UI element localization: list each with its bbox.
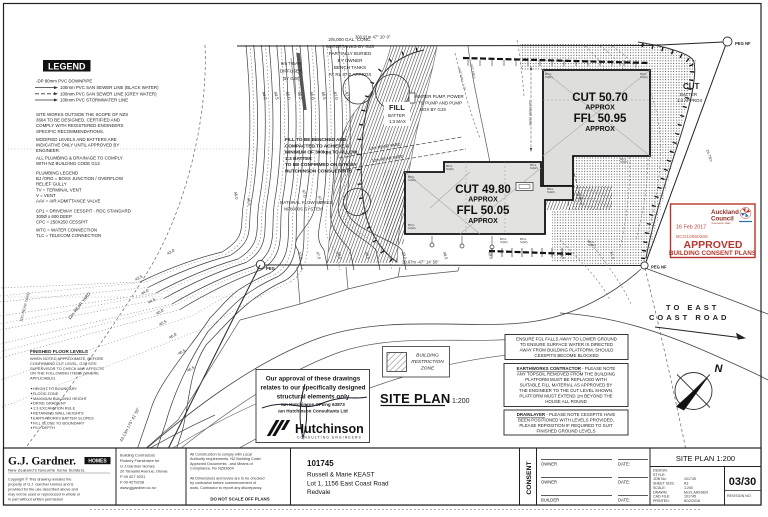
svg-text:DO NOT SCALE OFF PLANS: DO NOT SCALE OFF PLANS — [210, 497, 269, 502]
svg-text:SqWy: SqWy — [446, 167, 454, 171]
svg-text:SqWy: SqWy — [408, 178, 416, 182]
svg-text:OWNER: OWNER — [541, 480, 557, 485]
svg-text:AWAY FROM BUILDING PLATFORM, S: AWAY FROM BUILDING PLATFORM, SHOULD — [520, 348, 614, 353]
svg-text:WATER PUMP, POWER: WATER PUMP, POWER — [416, 94, 464, 99]
svg-text:3604 TO BE DESIGNED, CERTIFIED: 3604 TO BE DESIGNED, CERTIFIED AND — [36, 118, 120, 123]
svg-text:PEG NF: PEG NF — [651, 265, 667, 270]
svg-text:FILL DEPTH: FILL DEPTH — [33, 425, 55, 430]
svg-text:CUT: CUT — [683, 82, 700, 91]
svg-text:1:3 MAX: 1:3 MAX — [389, 119, 406, 124]
svg-text:CONSULTING ENGINEERS: CONSULTING ENGINEERS — [297, 436, 362, 440]
svg-text:TO PUMP AND PUMP: TO PUMP AND PUMP — [418, 101, 462, 106]
svg-text:HUTCHINSON CONSULTANTS: HUTCHINSON CONSULTANTS — [285, 169, 352, 174]
svg-text:1:3 BATTER: 1:3 BATTER — [285, 156, 312, 161]
svg-text:1:4 APPROX: 1:4 APPROX — [677, 98, 702, 103]
svg-text:AT RL 47.2 APPROX: AT RL 47.2 APPROX — [329, 72, 372, 77]
svg-text:Redvale: Redvale — [307, 489, 331, 496]
svg-text:RELIEF GULLY: RELIEF GULLY — [36, 182, 67, 187]
svg-text:COMPACTED TO ACHIEVE A: COMPACTED TO ACHIEVE A — [285, 143, 350, 148]
svg-text:Rodney Franchisee for: Rodney Franchisee for — [120, 458, 160, 463]
svg-text:APPLICABLE): APPLICABLE) — [30, 376, 56, 381]
svg-text:All Dimensions and levels are: All Dimensions and levels are to be chec… — [190, 477, 265, 481]
svg-text:2/5,000 GAL. CONC.: 2/5,000 GAL. CONC. — [328, 37, 371, 42]
svg-text:BEEN POSITIONED WITH LEVELS PR: BEEN POSITIONED WITH LEVELS PROVIDED, — [518, 418, 614, 423]
svg-text:All Construction to comply wit: All Construction to comply with Local — [190, 453, 252, 457]
svg-text:ANY TOPSOIL REMOVED FROM THE B: ANY TOPSOIL REMOVED FROM THE BUILDING — [517, 372, 616, 377]
svg-text:G.J. Gardner.: G.J. Gardner. — [8, 456, 76, 468]
svg-text:FFL 50.05: FFL 50.05 — [457, 205, 510, 217]
svg-text:8/12/2016: 8/12/2016 — [684, 499, 700, 503]
svg-text:CESSPITS BECOME BLOCKED: CESSPITS BECOME BLOCKED — [534, 353, 598, 358]
svg-text:THE ENGINEER TO THE CUT LEVEL: THE ENGINEER TO THE CUT LEVEL SHOWN, — [519, 388, 613, 393]
svg-text:PLUMBING LEGEND: PLUMBING LEGEND — [36, 171, 78, 176]
svg-text:SqWy: SqWy — [408, 226, 416, 230]
svg-text:BATTER: BATTER — [680, 92, 697, 97]
svg-text:MODIFIED LEVELS AND BATTERS AR: MODIFIED LEVELS AND BATTERS ARE — [36, 137, 117, 142]
svg-text:work, Contractor to report any: work, Contractor to report any discrepan… — [190, 486, 262, 490]
svg-text:DATE:: DATE: — [618, 498, 630, 503]
svg-text:CPC = 250X250 CESSPIT: CPC = 250X250 CESSPIT — [36, 220, 88, 225]
svg-text:Compliance, No NZ83604: Compliance, No NZ83604 — [190, 467, 234, 471]
svg-text:101745: 101745 — [307, 459, 334, 468]
svg-text:Lot 1, 1156 East Coast Road: Lot 1, 1156 East Coast Road — [307, 481, 389, 488]
svg-text:APPROX: APPROX — [585, 105, 615, 112]
svg-text:DATE:: DATE: — [618, 462, 630, 467]
svg-text:FINISHED FLOOR LEVELS: FINISHED FLOOR LEVELS — [30, 349, 88, 354]
svg-text:Our approval of these drawings: Our approval of these drawings — [266, 376, 361, 383]
svg-text:NATURAL FLOW SERIES: NATURAL FLOW SERIES — [280, 200, 333, 205]
svg-text:Council: Council — [711, 216, 734, 223]
svg-text:ZONE: ZONE — [420, 366, 435, 372]
svg-text:PLATFORM MUST BE REPLACED WITH: PLATFORM MUST BE REPLACED WITH — [525, 377, 607, 382]
svg-text:Ian Hutchinson Consultants Ltd: Ian Hutchinson Consultants Ltd — [278, 409, 348, 414]
svg-text:100mm PVC STORMWATER LINE: 100mm PVC STORMWATER LINE — [60, 98, 128, 103]
svg-text:CUT 49.80: CUT 49.80 — [455, 184, 511, 196]
svg-text:G.J.Gardner Homes: G.J.Gardner Homes — [120, 463, 155, 468]
svg-text:V = VENT: V = VENT — [36, 193, 56, 198]
svg-text:BENCH TANKS: BENCH TANKS — [334, 65, 366, 70]
svg-text:may not be used or reproduced: may not be used or reproduced in whole o… — [8, 493, 81, 497]
svg-text:P 09 427 9231: P 09 427 9231 — [120, 474, 145, 479]
svg-text:TO EAST: TO EAST — [666, 303, 719, 312]
svg-text:PRINTED:: PRINTED: — [653, 499, 670, 503]
svg-text:ENGINEER.: ENGINEER. — [36, 148, 60, 153]
svg-text:Building Contractors: Building Contractors — [120, 453, 155, 458]
svg-text:SqWy: SqWy — [620, 160, 628, 164]
svg-text:FFL 50.95: FFL 50.95 — [574, 113, 627, 125]
svg-text:FILL TO BE BENCHED AND: FILL TO BE BENCHED AND — [285, 137, 347, 142]
svg-text:relates to our specifically de: relates to our specifically designed — [261, 385, 366, 392]
svg-text:SqWy: SqWy — [545, 75, 553, 79]
svg-text:16 Feb 2017: 16 Feb 2017 — [676, 225, 706, 231]
svg-text:PLATFORM MUST EXTEND 1m BEYOND: PLATFORM MUST EXTEND 1m BEYOND THE — [519, 394, 612, 399]
svg-text:DRAINLAYER - PLEASE NOTE CESSP: DRAINLAYER - PLEASE NOTE CESSPITS HAVE — [517, 412, 616, 417]
svg-text:HOUSE ALL ROUND: HOUSE ALL ROUND — [545, 399, 587, 404]
svg-text:Copyright © This drawing remai: Copyright © This drawing remains the — [8, 478, 72, 482]
svg-text:BY OWNER: BY OWNER — [338, 58, 364, 63]
svg-text:03/30: 03/30 — [729, 476, 757, 488]
svg-text:LEGEND: LEGEND — [48, 62, 86, 72]
svg-text:by contractor before commencem: by contractor before commencement of — [190, 481, 257, 485]
svg-text:PEG NF: PEG NF — [735, 41, 751, 46]
svg-text:BOX BY GJS: BOX BY GJS — [420, 107, 446, 112]
svg-text:RESTRICTION: RESTRICTION — [411, 359, 444, 365]
svg-text:COAST ROAD: COAST ROAD — [649, 313, 729, 322]
svg-text:ENSURE FGL FALLS AWAY TO LOWER: ENSURE FGL FALLS AWAY TO LOWER GROUND — [516, 337, 617, 342]
svg-text:SUITABLE FILL MATERIAL AS APPR: SUITABLE FILL MATERIAL AS APPROVED BY — [520, 383, 613, 388]
svg-text:39.67m -47° 14' 50": 39.67m -47° 14' 50" — [402, 260, 439, 265]
svg-text:SqWy: SqWy — [547, 190, 555, 194]
svg-text:Hutchinson: Hutchinson — [295, 422, 364, 436]
svg-text:300Ø x 600 DEEP: 300Ø x 600 DEEP — [36, 214, 72, 219]
svg-text:APPROX: APPROX — [468, 197, 498, 204]
svg-text:provided for the use described: provided for the use described above and — [8, 488, 78, 492]
svg-text:INDICATIVE ONLY UNTIL APPROVED: INDICATIVE ONLY UNTIL APPROVED BY — [36, 143, 119, 148]
svg-text:20 Tamariki Avenue, Orewa: 20 Tamariki Avenue, Orewa — [120, 469, 168, 474]
svg-text:APPROX: APPROX — [468, 218, 498, 225]
svg-text:Authority requirements, NZ Bui: Authority requirements, NZ Building Code… — [190, 457, 262, 461]
svg-text:6m T-BAR: 6m T-BAR — [281, 61, 301, 66]
svg-text:SITE PLAN: SITE PLAN — [380, 391, 451, 406]
svg-text:www.gjgardner.co.nz: www.gjgardner.co.nz — [120, 485, 156, 490]
svg-text:SqWy: SqWy — [530, 166, 538, 170]
svg-text:SPECIFIC RECOMMENDATIONS.: SPECIFIC RECOMMENDATIONS. — [36, 129, 104, 134]
svg-text:12m REAR YARD: 12m REAR YARD — [528, 100, 532, 126]
svg-text:SITE PLAN 1:200: SITE PLAN 1:200 — [676, 454, 735, 463]
svg-text:EARTHWORKS CONTRACTOR - PLEASE: EARTHWORKS CONTRACTOR - PLEASE NOTE — [517, 366, 616, 371]
svg-text:SITE WORKS OUTSIDE THE SCOPE O: SITE WORKS OUTSIDE THE SCOPE OF NZS — [36, 112, 128, 117]
svg-text:Approved Documents , and Means: Approved Documents , and Means of — [190, 462, 254, 466]
svg-text:DATE:: DATE: — [618, 480, 630, 485]
svg-text:OWNER: OWNER — [541, 462, 557, 467]
svg-text:BJ /ORG = BOSS JUNCTION / OVER: BJ /ORG = BOSS JUNCTION / OVERFLOW — [36, 176, 124, 181]
svg-text:TLC = TELECOM CONNECTION: TLC = TELECOM CONNECTION — [36, 233, 101, 238]
svg-text:WITH NZ BUILDING CODE G13: WITH NZ BUILDING CODE G13 — [36, 161, 100, 166]
svg-text:100mm PVC SAN SEWER LINE (BLAC: 100mm PVC SAN SEWER LINE (BLACK WATER) — [60, 85, 159, 90]
svg-text:FILL: FILL — [389, 103, 405, 112]
svg-text:TO BE CONFIRMED ON SITE BY: TO BE CONFIRMED ON SITE BY — [285, 162, 358, 167]
svg-text:NF8000S SYSTEM: NF8000S SYSTEM — [284, 207, 323, 212]
svg-text:MINIMUM OF 300kpa TO ALLOW: MINIMUM OF 300kpa TO ALLOW — [285, 150, 358, 155]
svg-text:structural elements only: structural elements only — [277, 394, 350, 401]
svg-text:F 09 4279238: F 09 4279238 — [120, 480, 144, 485]
svg-text:ALL PLUMBING & DRAINAGE TO COM: ALL PLUMBING & DRAINAGE TO COMPLY — [36, 156, 123, 161]
svg-text:N: N — [715, 363, 724, 375]
svg-text:100mm PVC SAN SEWER LINE (GREY: 100mm PVC SAN SEWER LINE (GREY WATER) — [60, 91, 157, 96]
svg-text:PLEASE REPOSITION IF REQUIRED: PLEASE REPOSITION IF REQUIRED TO SUIT — [519, 423, 613, 428]
svg-text:FINISHED GROUND LEVELS: FINISHED GROUND LEVELS — [536, 429, 595, 434]
svg-text:SqWy: SqWy — [500, 240, 508, 244]
svg-text:PARTIALLY BURIED: PARTIALLY BURIED — [329, 51, 372, 56]
svg-text:1:200: 1:200 — [452, 398, 470, 405]
svg-text:BUILDING: BUILDING — [416, 353, 439, 359]
svg-text:property of G.J. Gardner Homes: property of G.J. Gardner Homes and is — [8, 483, 74, 487]
svg-text:TO ENSURE SURFACE WATER IS DIR: TO ENSURE SURFACE WATER IS DIRECTED — [520, 342, 613, 347]
svg-text:BUILDER: BUILDER — [541, 498, 559, 503]
svg-text:PEG: PEG — [266, 266, 275, 271]
svg-text:SqWy: SqWy — [588, 243, 596, 247]
svg-text:CP1 = DRIVEWAY CESSPIT - RDC S: CP1 = DRIVEWAY CESSPIT - RDC STANDARD — [36, 209, 131, 214]
svg-text:WATERTANKS BY GJS: WATERTANKS BY GJS — [326, 44, 375, 49]
svg-text:HOMES: HOMES — [88, 459, 107, 465]
svg-text:in part without written permis: in part without written permission — [8, 498, 63, 502]
svg-text:-DP 80mm PVC DOWNPIPE: -DP 80mm PVC DOWNPIPE — [36, 79, 92, 84]
svg-text:SqWy: SqWy — [640, 75, 648, 79]
svg-text:TV = TERMINAL VENT: TV = TERMINAL VENT — [36, 187, 82, 192]
svg-text:SqWy: SqWy — [520, 240, 528, 244]
svg-text:BY GJS: BY GJS — [283, 76, 299, 81]
svg-text:APPROX: APPROX — [585, 126, 615, 133]
svg-text:New Zealand's favourite home b: New Zealand's favourite home builders. — [8, 468, 86, 473]
svg-text:BATTER: BATTER — [388, 113, 405, 118]
svg-text:CUT 50.70: CUT 50.70 — [572, 92, 628, 104]
svg-text:Russell & Marie KEAST: Russell & Marie KEAST — [307, 472, 375, 479]
svg-text:DIFFUSER: DIFFUSER — [280, 69, 302, 74]
svg-text:CONSENT: CONSENT — [526, 461, 533, 495]
svg-text:BUILDING CONSENT PLANS: BUILDING CONSENT PLANS — [669, 250, 757, 257]
svg-text:AAV = AIR ADMITTANCE VALVE: AAV = AIR ADMITTANCE VALVE — [36, 199, 101, 204]
svg-text:SqWy: SqWy — [576, 196, 584, 200]
svg-text:WTC = WATER CONNECTION: WTC = WATER CONNECTION — [36, 228, 97, 233]
svg-text:COMPLY WITH REGISTERED ENGINEE: COMPLY WITH REGISTERED ENGINEERS — [36, 123, 123, 128]
svg-text:REVISION NO.: REVISION NO. — [727, 494, 752, 498]
